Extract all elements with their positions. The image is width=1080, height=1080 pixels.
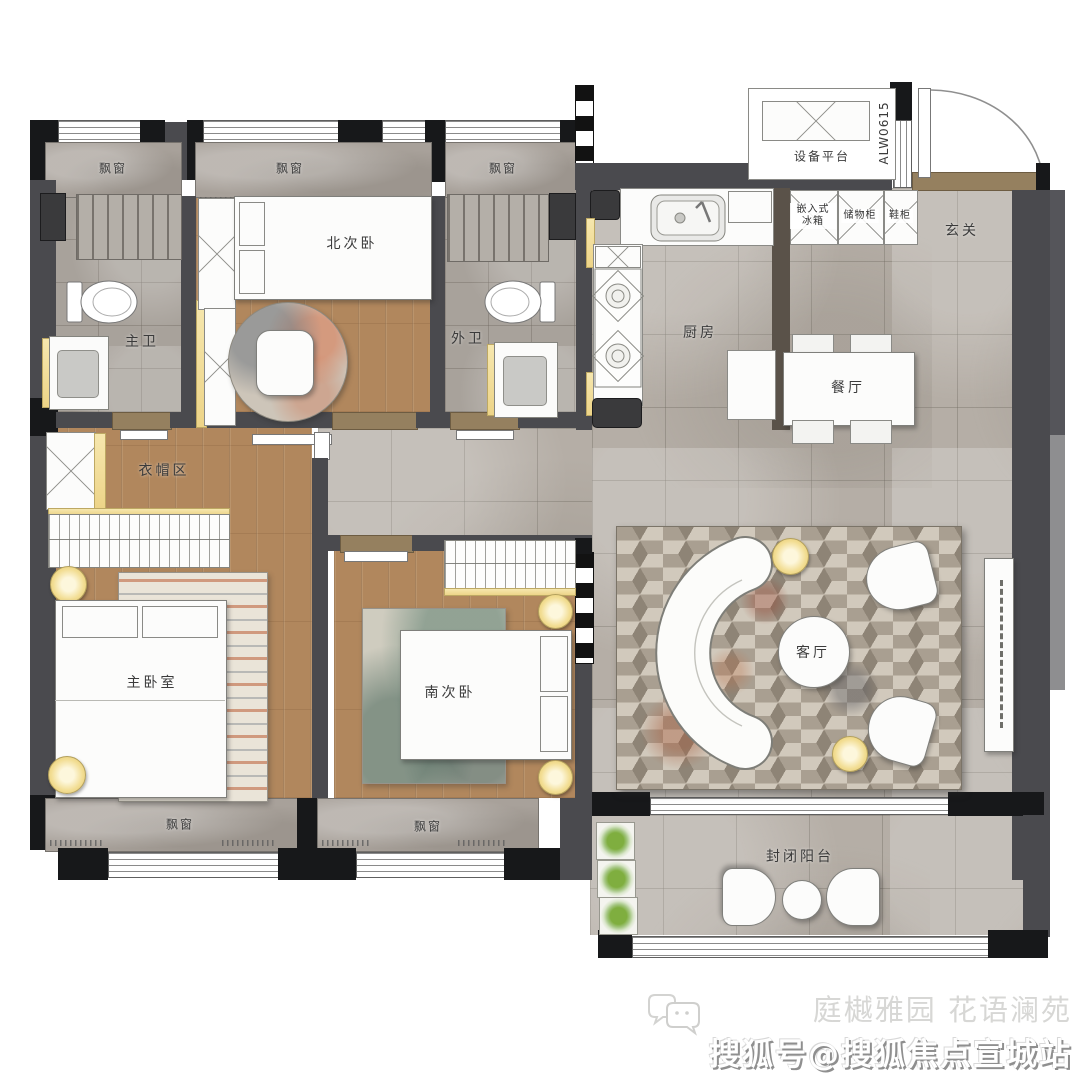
living-room-label: 客厅 [796, 642, 830, 662]
column [278, 848, 356, 880]
wall [416, 412, 450, 428]
balcony-table [782, 880, 822, 920]
column [988, 930, 1048, 958]
column [297, 798, 317, 850]
master-bath-label: 主卫 [125, 331, 159, 351]
window-band [203, 120, 340, 144]
gas-stove [594, 268, 642, 388]
sofa-curved [638, 528, 788, 778]
sohu-chat-icon [647, 989, 703, 1035]
bay-window-north-bedroom [195, 142, 432, 198]
shoe-label: 鞋柜 [887, 209, 913, 223]
tv [1000, 580, 1003, 728]
wall [181, 196, 196, 428]
foyer-label: 玄关 [945, 220, 979, 240]
section-marker [575, 552, 594, 664]
closet [46, 432, 96, 510]
storage-label: 储物柜 [842, 209, 879, 223]
wall-balcony-right [1023, 815, 1050, 937]
door-leaf [120, 430, 168, 440]
plant [599, 897, 638, 935]
section-marker [575, 85, 594, 165]
pillow [239, 250, 265, 294]
tv-cabinet [984, 558, 1014, 752]
wall [312, 551, 328, 798]
hob [590, 190, 620, 220]
bay-window-label: 飘窗 [414, 818, 442, 835]
wall [430, 196, 445, 428]
bay-window-label: 飘窗 [166, 816, 194, 833]
wall [56, 412, 112, 428]
north-bedroom-label: 北次卧 [327, 233, 378, 253]
door-leaf [314, 432, 330, 460]
column [504, 848, 560, 880]
column [592, 792, 650, 816]
wall-right-outer-light [1050, 435, 1065, 690]
window-band [445, 120, 562, 144]
toilet [482, 276, 556, 328]
nightstand [538, 760, 573, 795]
wall-right-outer [1050, 190, 1065, 435]
wall [312, 458, 328, 551]
pillow [239, 202, 265, 246]
south-bedroom-label: 南次卧 [425, 682, 476, 702]
floor-balcony [590, 815, 1043, 935]
vanity-sink [503, 356, 547, 406]
sliding-window-band [650, 797, 950, 815]
dining-label: 餐厅 [831, 377, 865, 397]
chair-north [256, 330, 314, 396]
door-leaf [456, 430, 514, 440]
nightstand [538, 594, 573, 629]
equipment-platform-label: 设备平台 [794, 148, 850, 165]
curtain [322, 840, 370, 846]
cloakroom-label: 衣帽区 [139, 460, 190, 480]
column [58, 848, 108, 880]
plant [597, 860, 636, 898]
nightstand [48, 756, 86, 794]
column [948, 792, 1044, 816]
window-code-label: ALW0615 [877, 101, 891, 164]
toilet [66, 276, 140, 328]
guest-bath-label: 外卫 [451, 328, 485, 348]
equipment-platform-xbox [762, 101, 870, 141]
side-table [832, 736, 868, 772]
water-heater [549, 193, 576, 240]
column [1036, 163, 1050, 190]
column [575, 538, 592, 554]
balcony-label: 封闭阳台 [766, 846, 834, 866]
window-band [58, 120, 142, 144]
door-threshold [112, 412, 172, 430]
watermark: 庭樾雅园 花语澜苑 搜狐号@搜狐焦点宣城站 [709, 987, 1072, 1074]
small-appliance [728, 191, 772, 223]
curtain [222, 840, 277, 846]
door-leaf [344, 551, 408, 562]
window-band [356, 852, 506, 878]
kitchen-label: 厨房 [683, 322, 717, 342]
wall [560, 798, 592, 880]
kitchen-sink [650, 194, 726, 242]
watermark-project-names: 庭樾雅园 花语澜苑 [709, 987, 1072, 1029]
wardrobe-hangers [48, 514, 230, 568]
fridge-label: 嵌入式冰箱 [790, 203, 836, 229]
floor-hallway [318, 428, 592, 538]
cabinet [595, 246, 641, 268]
kitchen-cabinet [727, 350, 776, 420]
wall [328, 535, 340, 551]
entry-door-arc [905, 78, 1055, 193]
side-table [772, 538, 809, 575]
bay-window-label: 飘窗 [99, 160, 127, 177]
pillow [540, 636, 568, 692]
bin [592, 398, 642, 428]
bay-window-label: 飘窗 [276, 160, 304, 177]
curtain [50, 840, 105, 846]
wardrobe-hangers [444, 540, 576, 590]
pillow [62, 606, 138, 638]
watermark-account: 搜狐号@搜狐焦点宣城站 [709, 1029, 1072, 1074]
curtain [458, 840, 506, 846]
wardrobe [198, 198, 236, 310]
balcony-chair [722, 868, 776, 926]
closet-strip [94, 433, 106, 509]
plant [596, 822, 635, 860]
floor-plan-image: 飘窗 飘窗 飘窗 设备平台 ALW0615 [0, 0, 1080, 1080]
window-band [632, 936, 990, 958]
window-band [382, 120, 427, 144]
dining-chair [792, 420, 834, 444]
wall-right [1012, 190, 1050, 880]
nightstand [50, 566, 87, 603]
shower-area [76, 194, 182, 260]
door-threshold [332, 412, 418, 430]
shower-area [447, 194, 549, 262]
pillow [142, 606, 218, 638]
pillow [540, 696, 568, 752]
washer [40, 193, 66, 241]
vanity-sink [57, 350, 99, 398]
master-bedroom-label: 主卧室 [127, 672, 178, 692]
balcony-chair [826, 868, 880, 926]
bay-window-label: 飘窗 [489, 160, 517, 177]
dining-chair [850, 420, 892, 444]
blanket-line [55, 700, 225, 701]
window-band [108, 852, 280, 878]
